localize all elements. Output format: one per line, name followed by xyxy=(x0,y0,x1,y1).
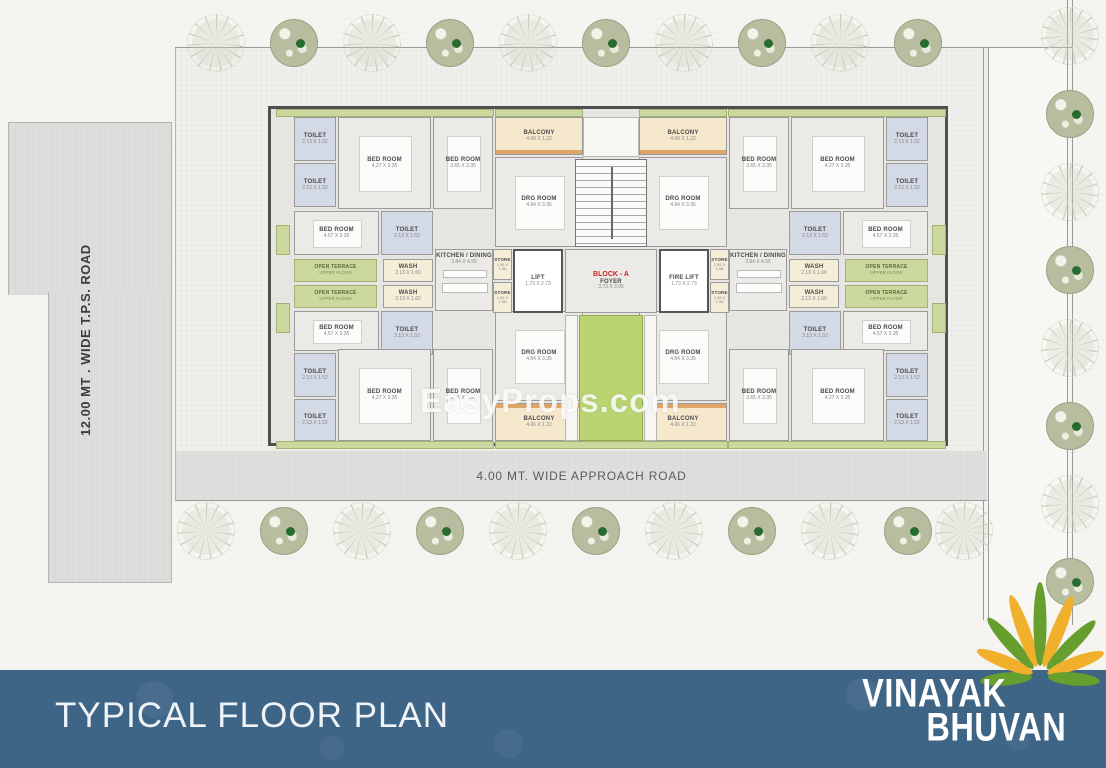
room-label: 4.84 X 3.35 xyxy=(526,203,552,209)
round-tree-icon xyxy=(1046,402,1094,450)
room-bed: BED ROOM3.65 X 3.35 xyxy=(433,117,493,209)
room-bed: BED ROOM4.27 X 3.35 xyxy=(791,349,884,441)
room-toilet: TOILET2.13 X 1.52 xyxy=(294,353,336,397)
sketch-tree-icon xyxy=(1041,163,1099,221)
room-balcony: BALCONY4.06 X 1.22 xyxy=(639,117,727,155)
room-edge-green xyxy=(932,303,946,333)
room-label: 4.27 X 3.35 xyxy=(372,164,398,170)
room-terrace: OPEN TERRACEUPPER FLOOR xyxy=(845,285,928,308)
room-label: UPPER FLOOR xyxy=(870,297,902,302)
brand-name-line2: BHUVAN xyxy=(926,704,1066,751)
room-label: 1.06 X 1.98 xyxy=(494,296,511,305)
room-label: 2.13 X 1.60 xyxy=(801,271,827,277)
room-store: STORE1.06 X 1.98 xyxy=(710,282,729,313)
round-tree-icon xyxy=(416,507,464,555)
tps-road-label: 12.00 MT . WIDE T.P.S. ROAD xyxy=(78,220,118,460)
room-label: 1.06 X 1.98 xyxy=(494,263,511,272)
sketch-tree-icon xyxy=(1041,475,1099,533)
round-tree-icon xyxy=(1046,90,1094,138)
room-label: 4.57 X 3.35 xyxy=(324,332,350,338)
round-tree-icon xyxy=(582,19,630,67)
room-label: 4.27 X 3.35 xyxy=(825,164,851,170)
room-toilet: TOILET2.13 X 1.52 xyxy=(294,117,336,161)
room-toilet: TOILET2.13 X 1.52 xyxy=(886,399,928,441)
room-store: STORE1.06 X 1.98 xyxy=(710,249,729,280)
room-label: 2.13 X 1.60 xyxy=(395,297,421,303)
room-label: 4.27 X 3.35 xyxy=(372,396,398,402)
room-label: 1.73 X 2.73 xyxy=(671,282,697,288)
room-label: 2.13 X 1.52 xyxy=(302,421,328,427)
room-strip-green xyxy=(276,109,494,117)
room-kitchen: KITCHEN / DINING3.84 X 4.55 xyxy=(729,249,787,311)
room-foyer: BLOCK - AFOYER3.73 X 3.05 xyxy=(565,249,657,313)
room-strip-green xyxy=(495,109,583,117)
room-balcony: BALCONY4.06 X 1.22 xyxy=(495,117,583,155)
room-label: 1.06 X 1.98 xyxy=(711,263,728,272)
room-label: 4.84 X 3.35 xyxy=(526,357,552,363)
sketch-tree-icon xyxy=(935,502,993,560)
round-tree-icon xyxy=(728,507,776,555)
room-lift: LIFT1.73 X 2.73 xyxy=(513,249,563,313)
room-drg: DRG ROOM4.84 X 3.35 xyxy=(495,157,583,247)
room-label: 4.06 X 1.22 xyxy=(670,423,696,429)
room-label: 2.13 X 1.52 xyxy=(302,140,328,146)
sketch-tree-icon xyxy=(489,502,547,560)
room-toilet: TOILET2.13 X 1.52 xyxy=(294,163,336,207)
sketch-tree-icon xyxy=(1041,7,1099,65)
room-wash: WASH2.13 X 1.60 xyxy=(789,259,839,282)
room-terrace: OPEN TERRACEUPPER FLOOR xyxy=(294,285,377,308)
room-toilet: TOILET2.13 X 1.52 xyxy=(886,117,928,161)
room-bed: BED ROOM4.27 X 3.35 xyxy=(338,117,431,209)
room-label: 4.57 X 3.35 xyxy=(324,234,350,240)
room-strip-green xyxy=(495,441,728,449)
room-toilet: TOILET2.13 X 1.52 xyxy=(789,211,841,255)
round-tree-icon xyxy=(260,507,308,555)
room-label: 2.13 X 1.52 xyxy=(302,376,328,382)
room-toilet: TOILET2.13 X 1.52 xyxy=(886,163,928,207)
page-title: TYPICAL FLOOR PLAN xyxy=(55,696,449,736)
room-label: 2.13 X 1.52 xyxy=(894,421,920,427)
room-wash: WASH2.13 X 1.60 xyxy=(789,285,839,308)
room-edge-green xyxy=(276,303,290,333)
room-label: 3.84 X 4.55 xyxy=(745,260,771,266)
room-kitchen: KITCHEN / DINING3.84 X 4.55 xyxy=(435,249,493,311)
room-store: STORE1.06 X 1.98 xyxy=(493,282,512,313)
room-label: 1.73 X 2.73 xyxy=(525,282,551,288)
room-bed: BED ROOM4.27 X 3.35 xyxy=(338,349,431,441)
room-label: 2.13 X 1.60 xyxy=(801,297,827,303)
room-bed: BED ROOM4.57 X 3.35 xyxy=(294,211,379,255)
sketch-tree-icon xyxy=(811,14,869,72)
room-label: 3.65 X 3.35 xyxy=(450,164,476,170)
room-strip-green xyxy=(728,441,946,449)
room-strip-green xyxy=(639,109,727,117)
room-label: 4.06 X 1.22 xyxy=(670,137,696,143)
room-label: 3.73 X 3.05 xyxy=(598,285,624,291)
round-tree-icon xyxy=(270,19,318,67)
room-plain xyxy=(565,315,578,441)
room-bed: BED ROOM4.57 X 3.35 xyxy=(843,311,928,351)
sketch-tree-icon xyxy=(1041,319,1099,377)
room-label: UPPER FLOOR xyxy=(870,271,902,276)
room-label: 4.84 X 3.35 xyxy=(670,357,696,363)
sketch-tree-icon xyxy=(655,14,713,72)
room-label: 4.57 X 3.35 xyxy=(873,332,899,338)
room-terrace: OPEN TERRACEUPPER FLOOR xyxy=(294,259,377,282)
room-toilet: TOILET2.13 X 1.52 xyxy=(886,353,928,397)
sketch-tree-icon xyxy=(645,502,703,560)
room-edge-green xyxy=(932,225,946,255)
room-bed: BED ROOM4.57 X 3.35 xyxy=(294,311,379,351)
room-stair xyxy=(575,159,647,247)
round-tree-icon xyxy=(894,19,942,67)
room-label: 4.06 X 1.22 xyxy=(526,423,552,429)
room-label: 4.27 X 3.35 xyxy=(825,396,851,402)
room-label: 2.13 X 1.52 xyxy=(894,140,920,146)
room-label: 3.65 X 3.35 xyxy=(746,396,772,402)
round-tree-icon xyxy=(738,19,786,67)
brand-logo: VINAYAK BHUVAN xyxy=(766,588,1106,768)
room-terrace: OPEN TERRACEUPPER FLOOR xyxy=(845,259,928,282)
room-label: 2.13 X 1.52 xyxy=(894,186,920,192)
room-bed: BED ROOM3.65 X 3.35 xyxy=(729,117,789,209)
approach-road-label: 4.00 MT. WIDE APPROACH ROAD xyxy=(476,469,686,483)
room-label: 1.06 X 1.98 xyxy=(711,296,728,305)
room-bed: BED ROOM3.65 X 3.35 xyxy=(729,349,789,441)
floor-plan-canvas: 12.00 MT . WIDE T.P.S. ROAD 4.00 MT. WID… xyxy=(0,0,1106,768)
sketch-tree-icon xyxy=(343,14,401,72)
room-drg: DRG ROOM4.84 X 3.35 xyxy=(639,157,727,247)
sketch-tree-icon xyxy=(801,502,859,560)
room-label: UPPER FLOOR xyxy=(319,297,351,302)
room-label: 2.13 X 1.52 xyxy=(394,234,420,240)
room-lift: FIRE LIFT1.73 X 2.73 xyxy=(659,249,709,313)
room-store: STORE1.06 X 1.98 xyxy=(493,249,512,280)
room-strip-green xyxy=(728,109,946,117)
room-label: 2.13 X 1.52 xyxy=(894,376,920,382)
sketch-tree-icon xyxy=(333,502,391,560)
room-edge-green xyxy=(276,225,290,255)
room-label: 2.13 X 1.52 xyxy=(394,334,420,340)
room-label: 3.65 X 3.35 xyxy=(746,164,772,170)
room-wash: WASH2.13 X 1.60 xyxy=(383,285,433,308)
sketch-tree-icon xyxy=(499,14,557,72)
round-tree-icon xyxy=(572,507,620,555)
room-label: 2.13 X 1.60 xyxy=(395,271,421,277)
round-tree-icon xyxy=(884,507,932,555)
room-label: 4.06 X 1.22 xyxy=(526,137,552,143)
room-toilet: TOILET2.13 X 1.52 xyxy=(294,399,336,441)
room-label: 4.57 X 3.35 xyxy=(873,234,899,240)
room-lobby xyxy=(579,315,643,441)
watermark: EasyProps.com xyxy=(420,382,681,420)
room-toilet: TOILET2.13 X 1.52 xyxy=(381,211,433,255)
room-strip-green xyxy=(276,441,494,449)
round-tree-icon xyxy=(426,19,474,67)
round-tree-icon xyxy=(1046,246,1094,294)
room-bed: BED ROOM4.57 X 3.35 xyxy=(843,211,928,255)
room-plain xyxy=(644,315,657,441)
room-label: BLOCK - A xyxy=(593,271,629,279)
room-plain xyxy=(583,117,639,157)
room-label: 2.13 X 1.52 xyxy=(802,234,828,240)
room-label: 2.13 X 1.52 xyxy=(302,186,328,192)
sketch-tree-icon xyxy=(187,14,245,72)
room-wash: WASH2.13 X 1.60 xyxy=(383,259,433,282)
approach-road: 4.00 MT. WIDE APPROACH ROAD xyxy=(176,451,987,501)
room-label: UPPER FLOOR xyxy=(319,271,351,276)
room-label: 3.84 X 4.55 xyxy=(451,260,477,266)
room-label: 4.84 X 3.35 xyxy=(670,203,696,209)
sketch-tree-icon xyxy=(177,502,235,560)
room-label: 2.13 X 1.52 xyxy=(802,334,828,340)
room-bed: BED ROOM4.27 X 3.35 xyxy=(791,117,884,209)
